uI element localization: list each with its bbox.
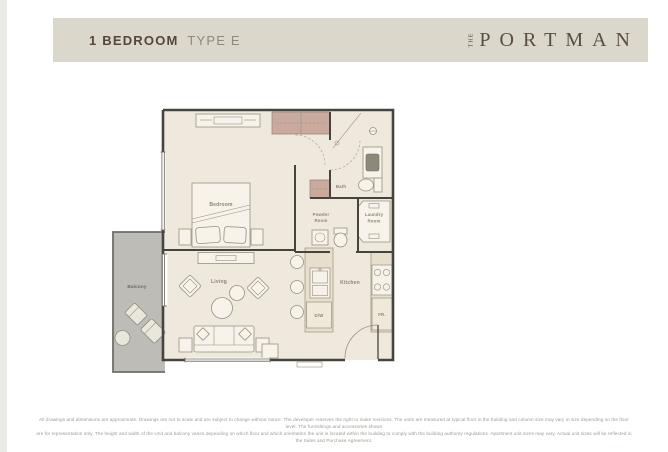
toilet: [334, 233, 347, 247]
powder-sink: [312, 230, 328, 245]
bath-label: Bath: [336, 184, 347, 189]
powder-room-label: Room: [315, 218, 328, 223]
disclaimer: All drawings and dimensions are approxim…: [34, 416, 634, 444]
exterior-ledge: [297, 362, 322, 367]
laundry-room-label: Laundry: [365, 212, 384, 217]
bar-stool: [291, 281, 304, 294]
toilet: [359, 179, 374, 191]
dishwasher-label: D/W: [315, 313, 325, 318]
bar-stool: [291, 256, 304, 269]
balcony-table: [115, 331, 130, 346]
pillow: [224, 226, 247, 243]
disclaimer-line-2: are for representation only. The height …: [34, 430, 634, 444]
laundry-room-label: Room: [368, 219, 381, 224]
tv-console: [198, 253, 254, 264]
balcony-label: Balcony: [127, 284, 147, 289]
side-table: [179, 338, 192, 352]
floor-plan: Bedroom Living Kitchen Bath Balcony Powd…: [0, 0, 668, 452]
disclaimer-line-1: All drawings and dimensions are approxim…: [34, 416, 634, 430]
stove: [372, 265, 392, 295]
powder-room-label: Powder: [313, 212, 330, 217]
coffee-table: [230, 286, 245, 301]
toilet-tank: [374, 178, 382, 192]
dresser: [196, 114, 260, 127]
nightstand: [251, 229, 263, 245]
bedroom-label: Bedroom: [209, 202, 233, 208]
kitchen-label: Kitchen: [340, 280, 360, 286]
fridge-label: FR.: [378, 312, 386, 317]
bar-stool: [291, 306, 304, 319]
coffee-table: [212, 298, 233, 319]
balcony-floor: [113, 232, 165, 372]
pillow: [195, 226, 220, 244]
bath-sink: [366, 154, 379, 171]
page: 1 BEDROOM TYPE E THE PORTMAN: [0, 0, 668, 452]
living-label: Living: [211, 279, 227, 285]
nightstand: [179, 229, 191, 245]
entry-cabinet: [262, 344, 278, 358]
